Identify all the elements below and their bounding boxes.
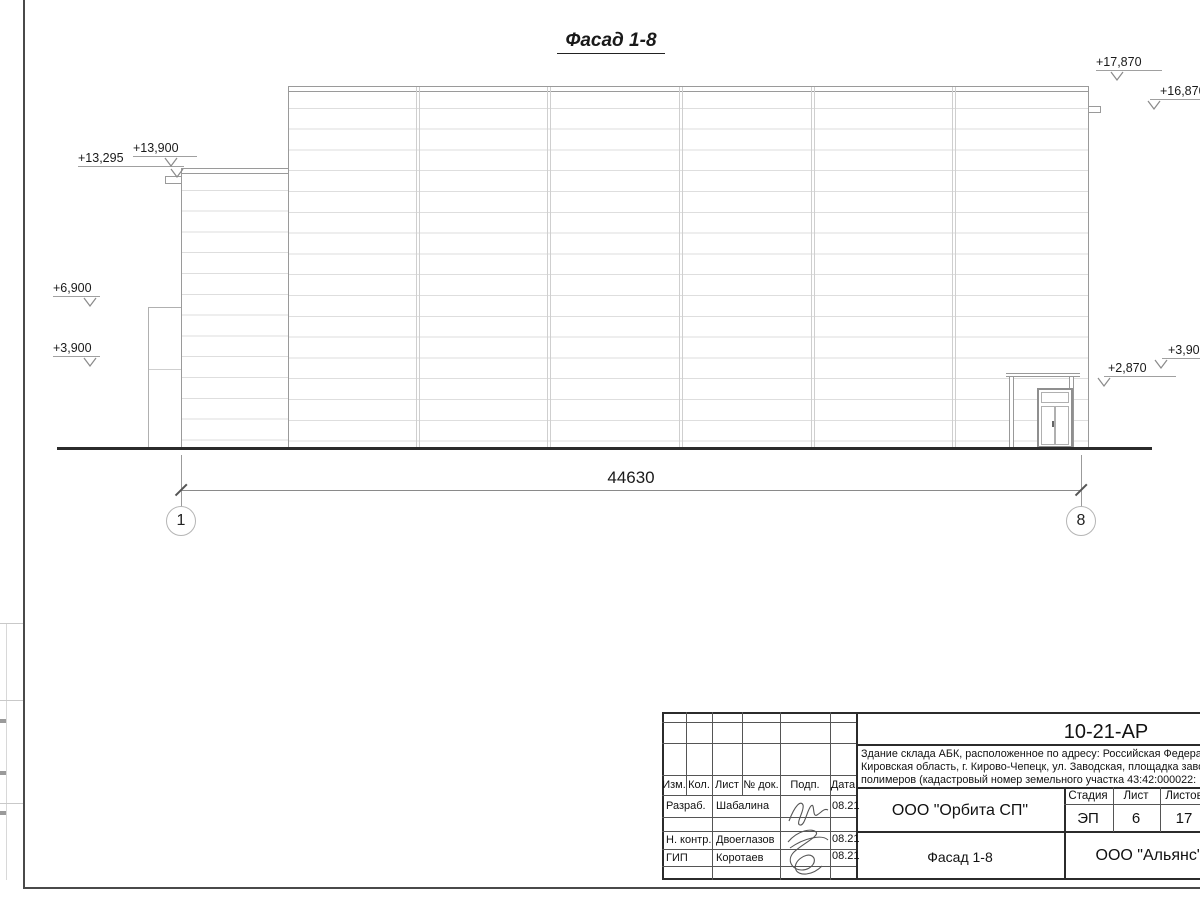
row-date: 08.21 xyxy=(832,800,860,812)
dimension-line xyxy=(181,490,1081,491)
titleblock-grid xyxy=(1160,787,1161,832)
elevation-arrow-icon xyxy=(82,357,98,368)
ground-line xyxy=(57,447,1152,450)
titleblock-grid xyxy=(780,712,781,880)
sheet-value: 6 xyxy=(1132,810,1140,827)
row-role: Разраб. xyxy=(666,800,706,812)
project-description-line1: Здание склада АБК, расположенное по адре… xyxy=(861,748,1200,760)
signature-icon xyxy=(786,797,830,827)
titleblock-border xyxy=(856,744,1200,746)
elevation-mark-13900: +13,900 xyxy=(133,141,197,157)
cutoff-text-fragment xyxy=(0,771,6,775)
ledge-16870 xyxy=(1088,106,1101,113)
titleblock-border xyxy=(662,712,664,880)
panel-joint xyxy=(547,87,551,447)
titleblock-border xyxy=(1064,787,1066,880)
client-org: ООО "Альянс" xyxy=(1096,847,1200,865)
row-date: 08.21 xyxy=(832,833,860,845)
facade-left-annex xyxy=(148,307,182,448)
row-date: 08.21 xyxy=(832,850,860,862)
sheet-label: Лист xyxy=(1124,790,1149,802)
titleblock-grid xyxy=(662,795,856,796)
elevation-mark-3900-right: +3,900 xyxy=(1162,343,1200,359)
titleblock-grid xyxy=(712,712,713,880)
panel-joint xyxy=(416,87,420,447)
panel-lines xyxy=(182,170,288,447)
panel-joint xyxy=(679,87,683,447)
elevation-arrow-icon xyxy=(1109,71,1125,82)
elevation-mark-6900: +6,900 xyxy=(53,281,100,297)
axis-number: 8 xyxy=(1077,512,1086,530)
signature-icon xyxy=(782,826,832,878)
titleblock-grid xyxy=(1064,804,1200,805)
col-header-data: Дата xyxy=(831,779,855,791)
elevation-arrow-icon xyxy=(1096,377,1112,388)
elevation-mark-16870: +16,870 xyxy=(1150,84,1200,100)
stage-value: ЭП xyxy=(1077,810,1099,827)
cutoff-table-line xyxy=(0,803,23,804)
col-header-izm: Изм. xyxy=(662,779,686,791)
cutoff-text-fragment xyxy=(0,811,6,815)
axis-bubble-8: 8 xyxy=(1066,506,1096,536)
titleblock-grid xyxy=(662,743,856,744)
titleblock-grid xyxy=(1113,787,1114,832)
facade-low-section xyxy=(181,168,289,448)
cutoff-table-line xyxy=(0,700,23,701)
cutoff-text-fragment xyxy=(0,719,6,723)
panel-joint xyxy=(811,87,815,447)
axis-bubble-1: 1 xyxy=(166,506,196,536)
panel-joint xyxy=(952,87,956,447)
view-title: Фасад 1-8 xyxy=(927,849,993,865)
dimension-value: 44630 xyxy=(181,468,1081,488)
titleblock-grid xyxy=(686,712,687,795)
drawing-title: Фасад 1-8 xyxy=(511,30,711,52)
sheets-label: Листов xyxy=(1165,790,1200,802)
project-description-line3: полимеров (кадастровый номер земельного … xyxy=(861,774,1196,786)
col-header-ndok: № док. xyxy=(743,779,778,791)
row-name: Коротаев xyxy=(716,852,764,864)
drawing-title-text: Фасад 1-8 xyxy=(557,30,664,54)
elevation-mark-2870: +2,870 xyxy=(1104,361,1176,377)
elevation-arrow-icon xyxy=(82,297,98,308)
stage-label: Стадия xyxy=(1068,790,1107,802)
elevation-arrow-icon xyxy=(163,157,179,168)
titleblock-border xyxy=(856,831,1200,833)
elevation-arrow-icon xyxy=(1146,100,1162,111)
titleblock-grid xyxy=(662,775,856,776)
sheets-value: 17 xyxy=(1176,810,1193,827)
titleblock-border xyxy=(662,878,1200,880)
annex-panel-line xyxy=(149,369,181,370)
design-org: ООО "Орбита СП" xyxy=(892,802,1028,820)
row-role: ГИП xyxy=(666,852,688,864)
panel-lines xyxy=(289,88,1088,447)
cutoff-table-line xyxy=(0,623,23,624)
elevation-mark-17870: +17,870 xyxy=(1096,55,1162,71)
elevation-arrow-icon xyxy=(169,168,185,179)
axis-number: 1 xyxy=(177,512,186,530)
sheet-frame-left xyxy=(23,0,25,889)
row-role: Н. контр. xyxy=(666,834,711,846)
facade-main-section xyxy=(288,86,1089,448)
titleblock-border xyxy=(856,787,1200,789)
col-header-list: Лист xyxy=(715,779,739,791)
entrance-post-left xyxy=(1009,377,1014,448)
col-header-kol: Кол. xyxy=(688,779,710,791)
doc-code: 10-21-АР xyxy=(1064,721,1149,744)
project-description-line2: Кировская область, г. Кирово-Чепецк, ул.… xyxy=(861,761,1200,773)
row-name: Двоеглазов xyxy=(716,834,774,846)
row-name: Шабалина xyxy=(716,800,769,812)
door-leaf-right xyxy=(1055,406,1069,445)
door-handle xyxy=(1052,421,1054,427)
extension-line-right xyxy=(1081,455,1082,499)
sheet-frame-bottom xyxy=(23,887,1200,889)
col-header-podp: Подп. xyxy=(790,779,819,791)
titleblock-grid xyxy=(662,722,856,723)
cutoff-table-line xyxy=(6,623,7,880)
door-transom-window xyxy=(1041,392,1069,403)
elevation-mark-3900-left: +3,900 xyxy=(53,341,100,357)
